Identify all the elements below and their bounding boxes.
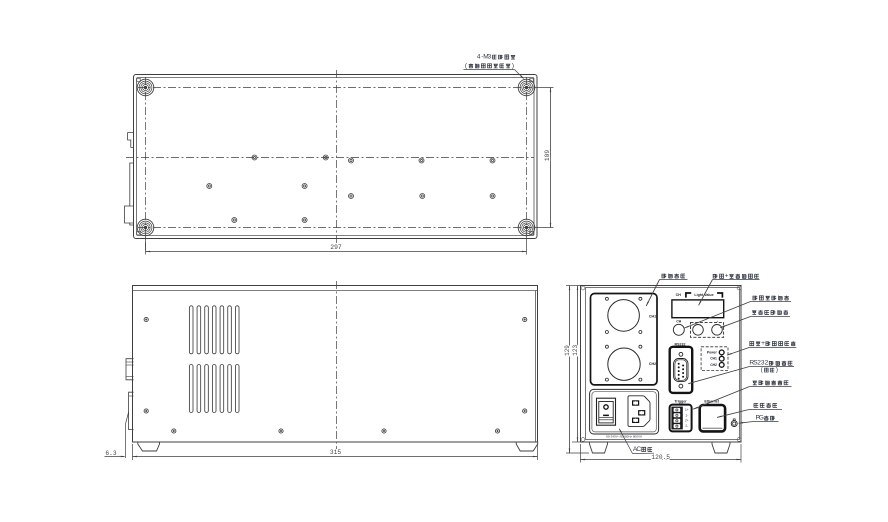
- svg-text:120.5: 120.5: [651, 454, 670, 461]
- svg-text:2: 2: [765, 360, 769, 367]
- svg-text:CH2: CH2: [649, 362, 656, 366]
- svg-text:Trigger: Trigger: [674, 400, 687, 404]
- svg-text:3: 3: [488, 54, 492, 61]
- svg-text:129: 129: [564, 345, 571, 356]
- svg-text:109: 109: [544, 150, 551, 161]
- svg-text:-: -: [697, 320, 698, 324]
- svg-text:): ): [776, 367, 778, 374]
- svg-text:CH2: CH2: [710, 363, 717, 367]
- svg-text:6.3: 6.3: [105, 450, 116, 457]
- svg-text:CH1: CH1: [649, 314, 656, 318]
- svg-text:2+: 2+: [685, 419, 689, 423]
- svg-text:297: 297: [330, 244, 342, 251]
- svg-text:CH: CH: [676, 293, 682, 297]
- svg-text:1+: 1+: [685, 408, 689, 412]
- svg-text:): ): [512, 62, 514, 69]
- svg-text:C: C: [636, 446, 641, 453]
- svg-text:315: 315: [330, 449, 341, 456]
- svg-text:Power: Power: [707, 350, 718, 354]
- svg-text:G: G: [759, 415, 764, 422]
- svg-text:+: +: [725, 273, 729, 280]
- svg-text:2-: 2-: [685, 424, 688, 428]
- svg-text:1-: 1-: [685, 413, 688, 417]
- svg-text:CH: CH: [676, 320, 681, 324]
- svg-text:CH1: CH1: [710, 357, 717, 361]
- svg-text:+: +: [716, 320, 718, 324]
- svg-text:+: +: [761, 340, 765, 347]
- svg-text:123: 123: [572, 345, 579, 356]
